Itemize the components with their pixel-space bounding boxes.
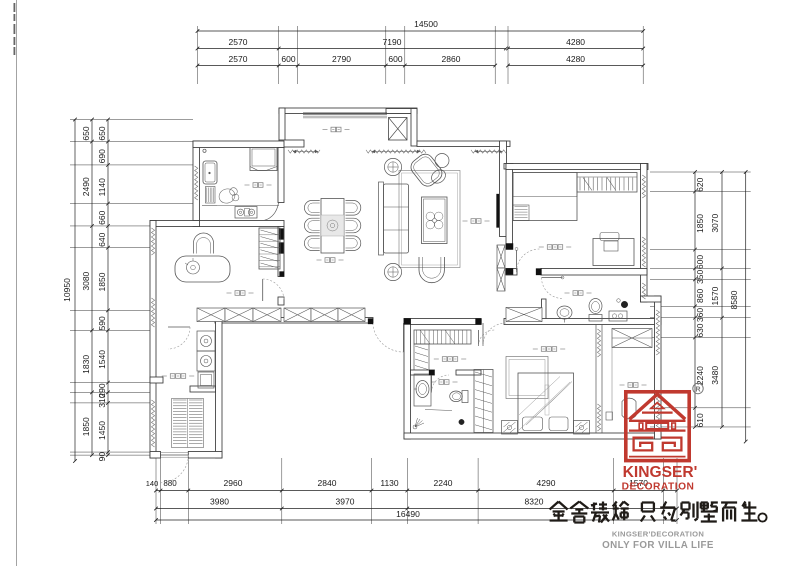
svg-text:2570: 2570: [229, 54, 248, 64]
svg-text:650: 650: [97, 126, 107, 140]
svg-text:3980: 3980: [210, 497, 229, 507]
svg-text:600: 600: [695, 255, 705, 269]
svg-text:2570: 2570: [229, 37, 248, 47]
svg-text:1850: 1850: [97, 272, 107, 291]
svg-text:1540: 1540: [97, 350, 107, 369]
svg-text:90: 90: [97, 452, 107, 462]
svg-text:2840: 2840: [318, 478, 337, 488]
svg-text:8320: 8320: [525, 497, 544, 507]
svg-text:4280: 4280: [566, 37, 585, 47]
svg-text:1570: 1570: [710, 286, 720, 305]
svg-text:600: 600: [281, 54, 295, 64]
svg-text:350: 350: [695, 270, 705, 284]
svg-text:640: 640: [97, 232, 107, 246]
svg-text:620: 620: [695, 177, 705, 191]
svg-text:3970: 3970: [336, 497, 355, 507]
svg-text:310: 310: [97, 393, 107, 407]
svg-text:16490: 16490: [396, 509, 420, 519]
svg-text:KINGSER': KINGSER': [623, 464, 698, 481]
svg-text:3080: 3080: [81, 271, 91, 290]
svg-text:ONLY FOR VILLA LIFE: ONLY FOR VILLA LIFE: [602, 540, 714, 551]
svg-text:2790: 2790: [332, 54, 351, 64]
svg-text:10950: 10950: [62, 278, 72, 302]
svg-text:2490: 2490: [81, 177, 91, 196]
svg-text:1450: 1450: [97, 421, 107, 440]
svg-text:600: 600: [388, 54, 402, 64]
svg-text:1850: 1850: [695, 214, 705, 233]
svg-text:860: 860: [695, 289, 705, 303]
svg-text:2240: 2240: [434, 478, 453, 488]
svg-text:R: R: [695, 387, 700, 394]
svg-text:2860: 2860: [442, 54, 461, 64]
svg-text:1830: 1830: [81, 355, 91, 374]
svg-text:1850: 1850: [81, 417, 91, 436]
svg-text:DECORATION: DECORATION: [622, 482, 695, 493]
svg-text:360: 360: [695, 308, 705, 322]
svg-text:140: 140: [146, 479, 159, 488]
svg-text:630: 630: [695, 323, 705, 337]
svg-text:650: 650: [81, 126, 91, 140]
svg-text:590: 590: [97, 316, 107, 330]
svg-text:4290: 4290: [537, 478, 556, 488]
svg-text:KINGSER'DECORATION: KINGSER'DECORATION: [612, 530, 704, 539]
svg-text:660: 660: [97, 210, 107, 224]
svg-text:610: 610: [695, 413, 705, 427]
svg-text:1130: 1130: [380, 478, 399, 488]
svg-text:880: 880: [163, 479, 177, 488]
svg-text:14500: 14500: [414, 19, 438, 29]
svg-text:4280: 4280: [566, 54, 585, 64]
svg-text:1140: 1140: [97, 178, 107, 197]
svg-text:2960: 2960: [224, 478, 243, 488]
svg-text:3480: 3480: [710, 366, 720, 385]
svg-text:690: 690: [97, 149, 107, 163]
svg-text:3070: 3070: [710, 213, 720, 232]
svg-text:2240: 2240: [695, 366, 705, 385]
svg-text:7190: 7190: [383, 37, 402, 47]
